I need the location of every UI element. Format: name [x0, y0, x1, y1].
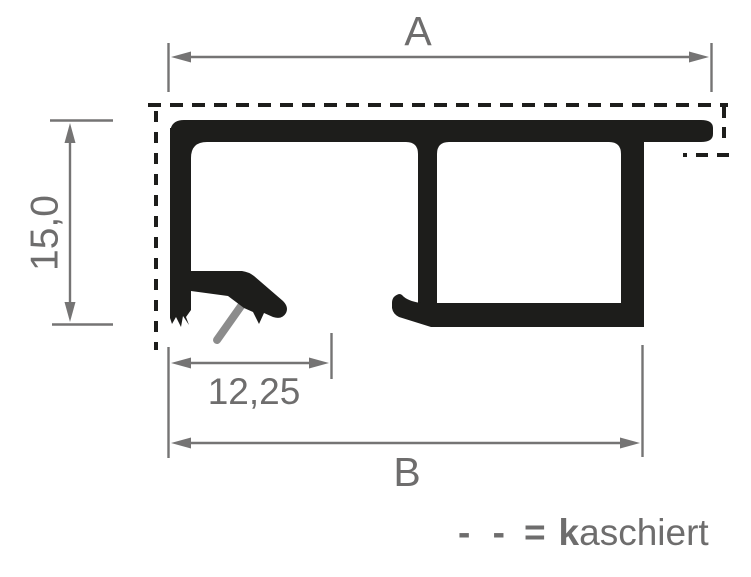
legend-term: kaschiert [559, 512, 709, 554]
profile-middle-web [418, 142, 437, 305]
legend: - - = kaschiert [458, 512, 709, 554]
profile-fillet-left [191, 142, 207, 158]
dimension-a: A [169, 8, 712, 92]
profile-cross-section [170, 120, 713, 327]
dimension-12-25: 12,25 [171, 333, 332, 412]
arrow-left-icon [171, 438, 191, 449]
dimension-15-label: 15,0 [24, 195, 67, 271]
arrow-right-icon [689, 52, 709, 63]
arrow-down-icon [65, 302, 76, 322]
arrow-right-icon [309, 358, 329, 369]
legend-dash-symbol: - - [458, 512, 511, 554]
dimension-a-label: A [404, 8, 432, 54]
dimension-b: B [169, 345, 643, 495]
legend-term-rest: aschiert [579, 512, 709, 553]
legend-equals-sign: = [524, 512, 546, 554]
dimension-b-label: B [393, 449, 420, 495]
arrow-up-icon [65, 123, 76, 143]
profile-fillet-rightweb-left [609, 142, 621, 154]
technical-drawing-canvas: A 15,0 12,25 B - [0, 0, 751, 577]
legend-term-bold: k [559, 512, 580, 553]
profile-top-flange [170, 120, 713, 142]
arrow-left-icon [171, 52, 191, 63]
dimension-height-15: 15,0 [24, 121, 113, 325]
dimension-1225-label: 12,25 [208, 371, 301, 412]
profile-right-web [621, 142, 644, 327]
profile-fillet-web-right [437, 142, 449, 154]
profile-drawing: A 15,0 12,25 B [0, 0, 751, 577]
arrow-left-icon [171, 358, 191, 369]
profile-fillet-web-left [406, 142, 418, 154]
profile-left-leg [170, 128, 191, 327]
profile-clip-barb [191, 271, 287, 324]
arrow-right-icon [620, 438, 640, 449]
